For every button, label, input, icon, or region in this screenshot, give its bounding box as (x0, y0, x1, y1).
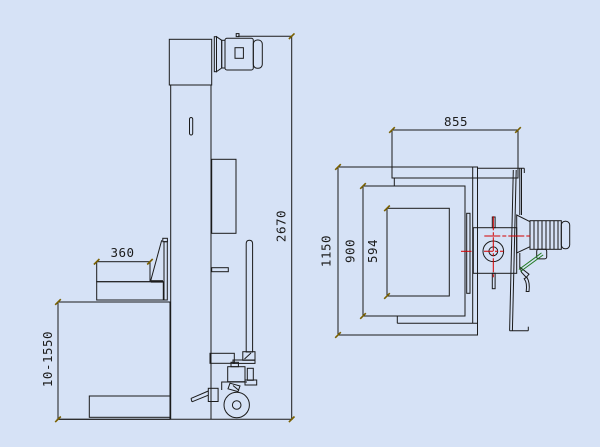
dim-label-360: 360 (110, 245, 134, 260)
tow-lever (191, 391, 208, 398)
drive-unit (473, 215, 569, 289)
dimension-body-depth: 900 (343, 183, 366, 319)
motor-flange (217, 37, 222, 72)
drawing-svg: 360 2670 10-1550 (0, 0, 600, 447)
dim-label-594: 594 (365, 239, 380, 263)
mast-slot (190, 118, 193, 136)
fork-back-plate (164, 242, 167, 300)
motor-junction-box (537, 249, 547, 259)
leader-line (519, 253, 542, 270)
fork-upper (97, 262, 150, 282)
frame-outline (338, 130, 518, 335)
body-box (58, 302, 170, 419)
lift-motor (214, 34, 262, 72)
motor-flange-cone (517, 215, 530, 253)
dim-label-1150: 1150 (319, 235, 334, 267)
fork-strut (151, 240, 162, 280)
motor-fins (534, 221, 558, 250)
side-rail (467, 213, 470, 293)
dimension-overall-depth: 1150 (319, 164, 341, 338)
jack-arm (210, 353, 234, 363)
side-elevation-view: 360 2670 10-1550 (40, 33, 295, 422)
plan-view: 855 1150 900 594 (319, 114, 570, 338)
drive-motor-cap (561, 221, 569, 248)
cad-drawing: 360 2670 10-1550 (0, 0, 600, 447)
wheel-hub (232, 401, 241, 410)
outer-frame (338, 167, 478, 335)
jack-handle-rod (246, 240, 252, 352)
mast-column (169, 39, 236, 419)
jack-mechanism (191, 240, 257, 417)
motor-end-cap (253, 40, 262, 68)
mast-side-tab (212, 268, 229, 272)
fork-lower (97, 282, 164, 300)
motor-terminal-box (235, 48, 243, 59)
lift-body (57, 302, 293, 419)
motor-mount-plate (473, 228, 516, 274)
leader-line (521, 255, 544, 272)
motor-body (225, 38, 253, 70)
dim-label-855: 855 (444, 114, 468, 129)
mast-head-box (169, 39, 211, 85)
mast-side-box (212, 159, 236, 233)
lever-bracket (208, 388, 218, 401)
dimension-platform-depth: 594 (365, 206, 390, 299)
top-frame-box (392, 130, 518, 178)
base-box (89, 396, 170, 417)
dim-label-900: 900 (343, 239, 358, 263)
hook (524, 277, 529, 291)
wheel (224, 392, 249, 417)
dim-label-10-1550: 10-1550 (40, 331, 55, 387)
jack-pump-body (228, 367, 245, 382)
platform (387, 208, 449, 296)
dim-label-2670: 2670 (274, 210, 289, 242)
